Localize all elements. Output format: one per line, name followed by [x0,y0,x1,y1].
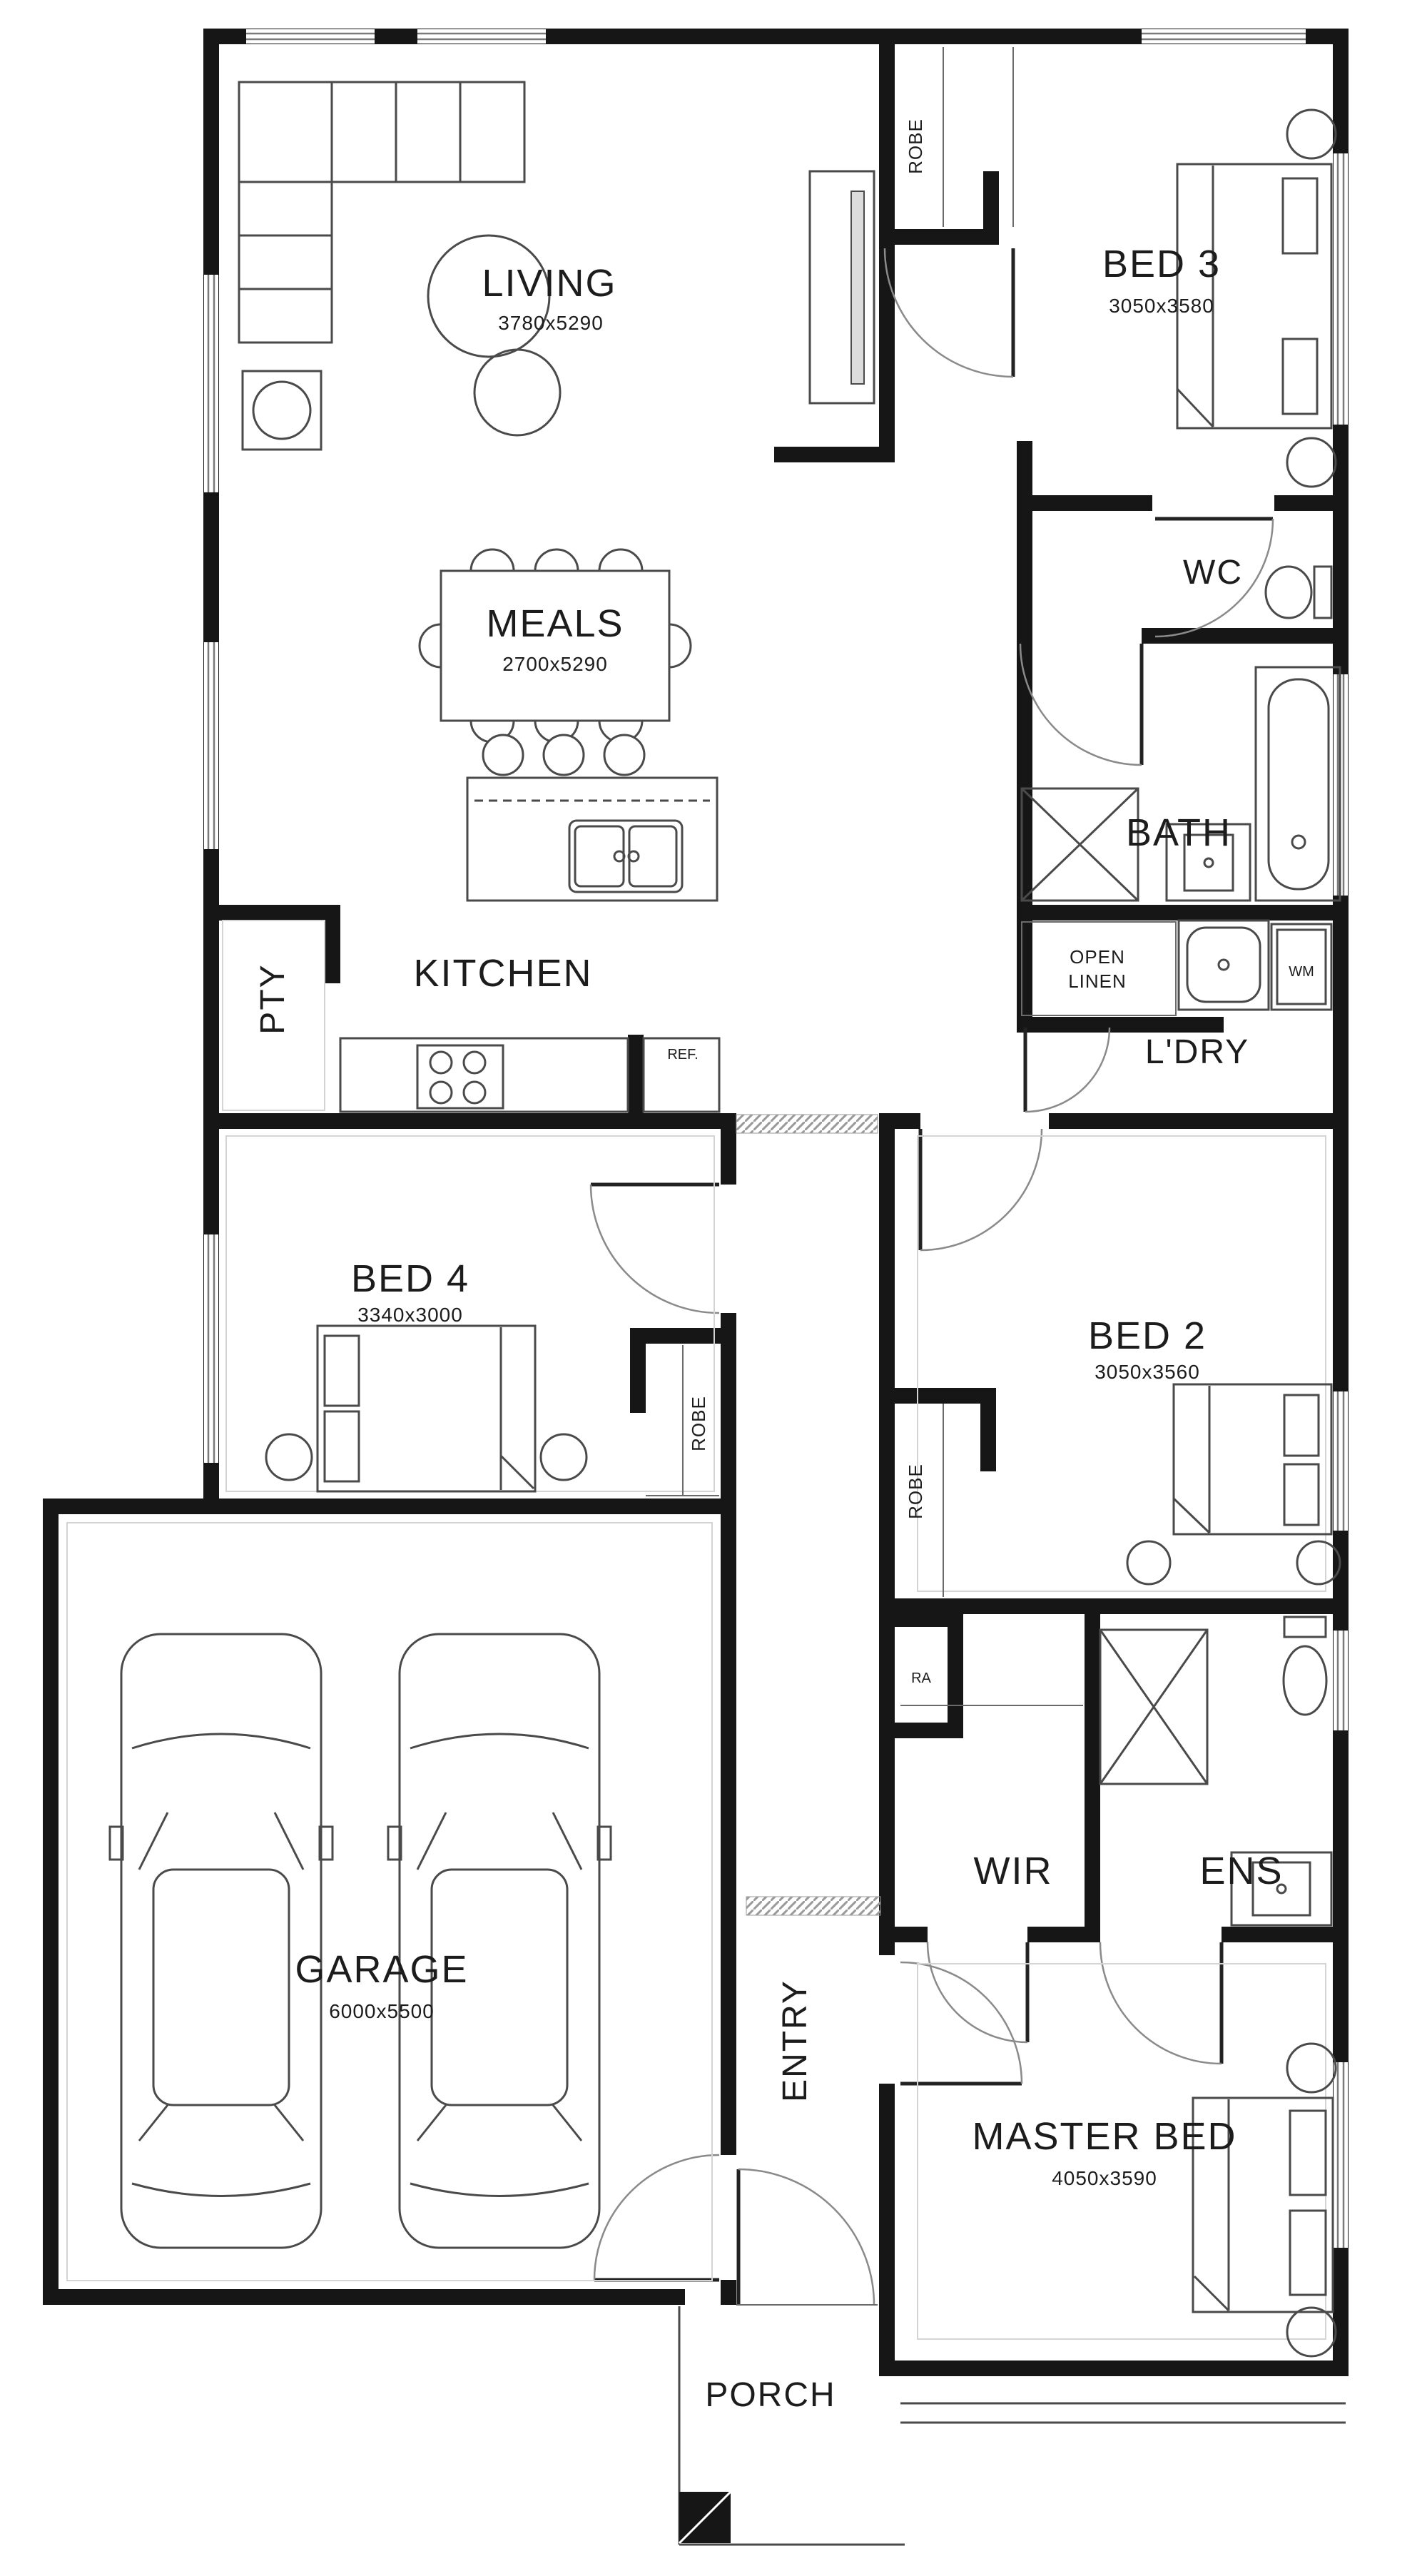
bed3-pillow [1283,339,1317,414]
label-entry: ENTRY [776,1979,814,2102]
dining-chair-icon [535,549,578,571]
stool-icon [544,735,584,775]
hatch-hall-threshold [736,1115,878,1133]
wall-garage-left [43,1499,59,2305]
kitchen-bench-icon [340,1038,628,1112]
bed4-pillow [325,1411,359,1481]
bathtub-drain [1292,836,1305,848]
wall-bath-bottom [1017,905,1349,921]
label-bath: BATH [1126,811,1232,854]
plant-icon [253,382,310,439]
label-bed4: BED 4 [351,1257,469,1300]
wall-hall-left-a [721,1113,736,1185]
laundry-fixtures [1022,921,1331,1015]
wall-wc-bath-stub [1017,628,1027,644]
wall-master-top-c [1222,1927,1349,1942]
bed2-fold-lines [1174,1386,1209,1533]
labels: LIVING 3780x5290 MEALS 2700x5290 KITCHEN… [254,118,1314,2414]
cooktop-burner [430,1082,452,1103]
wall-wir-ens-divider [1085,1614,1100,1927]
linen-shelf-icon [1022,922,1176,1015]
wall-ra-bottom [895,1723,963,1738]
door-bed2 [920,1129,1042,1250]
wall-midhouse-a [219,1113,721,1129]
floor-plan-drawing: LIVING 3780x5290 MEALS 2700x5290 KITCHEN… [0,0,1427,2576]
sink-icon [569,821,682,892]
wall-master-bottom [885,2361,1349,2376]
bathtub-inner [1269,679,1329,889]
wall-robe4-stub [630,1344,646,1413]
dims-bed2: 3050x3560 [1095,1361,1200,1383]
meals-fixtures [420,549,691,742]
sink-bowl-right [629,826,676,886]
wall-entry-right-a [879,1113,895,1955]
label-open-linen-2: LINEN [1068,970,1127,992]
island-bench-icon [467,778,717,901]
wall-bed3-bottom-b [1274,495,1349,511]
wall-master-top-a [895,1927,928,1942]
dining-chair-icon [471,549,514,571]
label-wc: WC [1183,554,1243,592]
bed3-side-table [1287,438,1336,487]
master-pillow [1290,2211,1326,2295]
cooktop-burner [464,1052,485,1073]
master-side-table [1287,2044,1336,2092]
door-front-entry [736,2169,878,2305]
wall-midhouse-b [895,1113,920,1129]
car-icon [110,1634,332,2248]
wall-bed3-bottom-a [1017,495,1152,511]
door-laundry [1025,1028,1109,1112]
dims-bed3: 3050x3580 [1109,295,1214,317]
label-garage: GARAGE [295,1948,468,1991]
sink-bowl-left [575,826,624,886]
bed4-pillow [325,1336,359,1406]
ens-shower-cross [1100,1630,1207,1784]
label-wir: WIR [974,1850,1053,1892]
label-porch: PORCH [705,2376,836,2414]
dims-living: 3780x5290 [498,312,604,334]
wall-midhouse-c [1049,1113,1349,1129]
label-laundry: L'DRY [1145,1033,1249,1071]
bed4-fold-lines [501,1327,534,1490]
label-robe-bed3: ROBE [905,118,926,174]
door-bed3 [885,248,1013,377]
label-living: LIVING [482,262,616,305]
door-wir [928,1942,1027,2042]
label-robe-bed4: ROBE [688,1396,709,1451]
cooktop-burner [464,1082,485,1103]
bath-fixtures [1022,667,1340,901]
alfresco-deck-lines [900,2403,1346,2423]
bed4-room-outline [226,1136,714,1491]
bed3-pillow [1283,178,1317,253]
window-living-top [246,29,375,44]
toilet-bowl-icon [1266,567,1311,618]
wall-robe2-stub-h [895,1388,996,1404]
wall-pantry-top [219,905,340,921]
bed4-side-table [541,1434,586,1480]
label-bed3: BED 3 [1102,243,1221,285]
bath-shower-cross [1022,788,1138,901]
bed3-side-table [1287,110,1336,158]
wall-bed4-bottom [219,1499,721,1514]
window-bed3-right [1334,153,1348,425]
door-bath [1020,644,1142,765]
ottoman-icon [474,350,560,435]
window-meals-left [204,642,218,849]
window-ens-right [1334,1631,1348,1730]
bed2-icon [1174,1384,1331,1534]
label-kitchen: KITCHEN [413,952,592,995]
ens-toilet-bowl [1284,1646,1326,1715]
label-ens: ENS [1199,1850,1283,1892]
master-pillow [1290,2111,1326,2195]
wall-robe3-stub-v [983,171,999,245]
window-bed3-top [1142,29,1306,44]
tv-screen-icon [851,191,864,384]
wall-hall-left-b [721,1313,736,2155]
label-master: MASTER BED [972,2115,1236,2158]
dims-garage: 6000x5500 [329,2000,435,2022]
garage-room-outline [67,1523,712,2281]
toilet-tank-icon [1314,567,1331,618]
wall-garage-bottom [43,2289,685,2305]
label-ra: RA [911,1670,931,1686]
window-living-top-2 [417,29,546,44]
label-ref: REF. [667,1047,698,1063]
window-bed2-right [1334,1391,1348,1531]
wall-robe2-stub-v [980,1404,996,1471]
floor-plan-page: LIVING 3780x5290 MEALS 2700x5290 KITCHEN… [0,0,1427,2576]
door-bed4 [591,1185,719,1313]
master-side-table [1287,2308,1336,2356]
bed2-pillow [1284,1395,1319,1456]
stool-icon [604,735,644,775]
bed4-fixtures [226,1136,719,1496]
cooktop-burner [430,1052,452,1073]
bath-basin-drain [1204,858,1213,867]
master-fixtures [918,1964,1336,2356]
wall-master-top-b [1027,1927,1100,1942]
label-pantry: PTY [254,963,292,1034]
stool-icon [483,735,523,775]
window-bed4-left [204,1234,218,1463]
walls [43,29,1349,2376]
label-wm: WM [1289,964,1314,980]
laundry-tub-inner [1187,928,1260,1002]
doors [591,248,1273,2305]
label-bed2: BED 2 [1088,1314,1207,1357]
dining-chair-icon [420,624,441,667]
label-open-linen-1: OPEN [1070,946,1125,968]
dims-meals: 2700x5290 [502,653,608,675]
wall-pantry-right [325,905,340,983]
sofa-cushion-lines [239,82,460,289]
wall-living-stub [774,447,895,462]
window-master-right [1334,2062,1348,2248]
porch-outline [679,2306,1346,2545]
dining-chair-icon [599,549,642,571]
wc-fixtures [1266,567,1331,618]
hatch-entry-threshold [746,1897,880,1915]
wall-hall-right [1017,441,1032,1017]
wall-fridge-stub [628,1035,644,1113]
wall-ra-right [948,1611,963,1738]
wall-living-tv [879,44,895,462]
wall-hall-left-c [721,2280,736,2305]
ens-toilet-tank [1284,1617,1326,1637]
door-garage-entry [594,2155,719,2280]
dining-table-icon [441,571,669,721]
bed4-icon [318,1326,535,1491]
label-robe-bed2: ROBE [905,1464,926,1519]
dims-bed4: 3340x3000 [357,1304,463,1326]
car-icon [388,1634,611,2248]
door-master [900,1962,1022,2084]
wall-linen-bottom [1017,1017,1224,1033]
cooktop-icon [417,1045,503,1108]
kitchen-fixtures [223,735,719,1112]
laundry-tub-drain [1219,960,1229,970]
garage-fixtures [67,1523,712,2281]
bed4-side-table [266,1434,312,1480]
wall-bed2-bottom [895,1598,1349,1614]
robe3-lines [943,47,1013,227]
window-living-left [204,275,218,492]
wall-robe4-top [630,1328,721,1344]
bed2-side-table [1127,1541,1170,1584]
bed2-pillow [1284,1464,1319,1525]
wall-entry-right-b [879,2084,895,2376]
wall-garage-top-ext [43,1499,219,1514]
door-ens [1100,1942,1222,2064]
label-meals: MEALS [486,602,624,645]
dining-chair-icon [669,624,691,667]
dims-master: 4050x3590 [1052,2167,1157,2189]
